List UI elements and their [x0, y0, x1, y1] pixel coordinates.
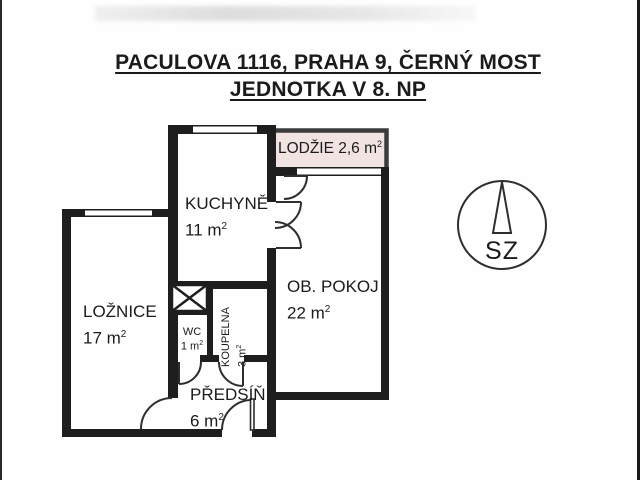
- room-label-lodzie: LODŽIE 2,6 m2: [275, 139, 385, 163]
- predsin-area-text: 6 m: [190, 412, 218, 431]
- door-arc-kitchen-bottom: [275, 222, 301, 248]
- compass-direction-label: SZ: [472, 237, 532, 266]
- koupelna-area-text: 3 m: [237, 349, 249, 367]
- loznice-area-sup: 2: [121, 329, 127, 340]
- koupelna-area-sup: 2: [236, 345, 243, 349]
- loznice-name: LOŽNICE: [83, 300, 157, 323]
- predsin-area: 6 m2: [190, 406, 266, 433]
- predsin-area-sup: 2: [218, 412, 224, 423]
- door-arc-kitchen-top: [275, 202, 301, 228]
- room-label-koupelna: KOUPELNA 3 m2: [220, 275, 246, 367]
- predsin-name: PŘEDSÍŇ: [190, 383, 266, 406]
- floorplan-drawing: [0, 0, 640, 480]
- window-kitchen: [193, 127, 257, 133]
- door-arc-loznice: [141, 398, 172, 429]
- kuchyne-area-sup: 2: [222, 221, 228, 232]
- wc-name: WC: [178, 326, 206, 338]
- kuchyne-area: 11 m2: [185, 215, 268, 242]
- loznice-area-text: 17 m: [83, 329, 121, 348]
- wall-loznice-left: [62, 209, 71, 437]
- koupelna-name: KOUPELNA: [220, 275, 233, 367]
- lodzie-sup: 2: [377, 139, 382, 149]
- ob-pokoj-area-sup: 2: [325, 304, 331, 315]
- shaft-box: [171, 284, 208, 312]
- wall-obpokoj-right: [381, 167, 389, 400]
- wall-center-vertical-upper: [267, 125, 276, 202]
- ob-pokoj-area: 22 m2: [287, 298, 379, 325]
- room-label-wc: WC 1 m2: [178, 326, 206, 353]
- ob-pokoj-area-text: 22 m: [287, 304, 325, 323]
- window-lodzie-obpokoj: [297, 169, 381, 175]
- ob-pokoj-name: OB. POKOJ: [287, 275, 379, 298]
- kuchyne-name: KUCHYNĚ: [185, 192, 268, 215]
- door-arc-wc: [179, 362, 201, 384]
- window-loznice: [85, 211, 152, 216]
- wc-area: 1 m2: [178, 338, 206, 353]
- room-label-loznice: LOŽNICE 17 m2: [83, 300, 157, 350]
- wc-area-sup: 2: [199, 340, 203, 347]
- loznice-area: 17 m2: [83, 323, 157, 350]
- wall-obpokoj-bottom: [267, 392, 389, 400]
- room-label-predsin: PŘEDSÍŇ 6 m2: [190, 383, 266, 433]
- koupelna-area: 3 m2: [233, 275, 250, 367]
- room-label-ob-pokoj: OB. POKOJ 22 m2: [287, 275, 379, 325]
- kuchyne-area-text: 11 m: [185, 221, 222, 240]
- room-label-kuchyne: KUCHYNĚ 11 m2: [185, 192, 268, 242]
- wall-center-vertical-lower: [267, 248, 276, 437]
- lodzie-text: LODŽIE 2,6 m: [278, 140, 377, 157]
- floorplan-page: PACULOVA 1116, PRAHA 9, ČERNÝ MOST JEDNO…: [0, 0, 640, 480]
- wc-area-text: 1 m: [181, 341, 199, 353]
- door-arc-lodzie: [284, 176, 307, 199]
- wall-predsin-top-1: [168, 355, 177, 362]
